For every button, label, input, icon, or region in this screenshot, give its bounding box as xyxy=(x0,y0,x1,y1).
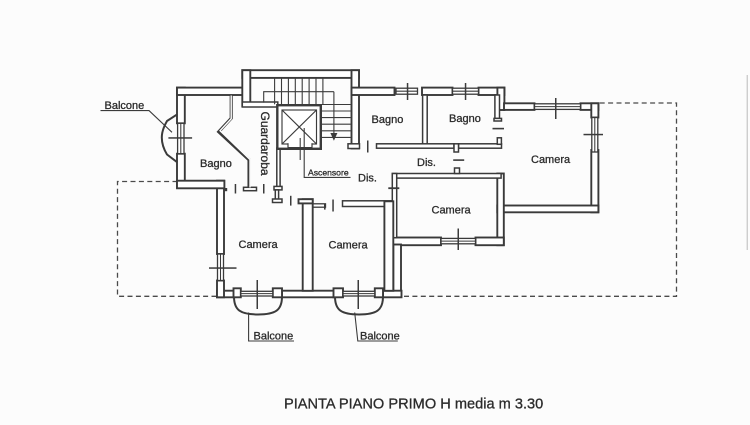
svg-text:Bagno: Bagno xyxy=(449,113,481,125)
svg-text:Camera: Camera xyxy=(531,154,571,166)
svg-text:Camera: Camera xyxy=(239,239,279,251)
svg-text:Camera: Camera xyxy=(329,240,369,252)
svg-text:Balcone: Balcone xyxy=(360,330,400,342)
svg-text:Ascensore: Ascensore xyxy=(308,168,349,178)
svg-text:Bagno: Bagno xyxy=(372,114,404,126)
svg-text:Guardaroba: Guardaroba xyxy=(258,112,272,176)
svg-text:Balcone: Balcone xyxy=(105,100,145,112)
svg-text:Dis.: Dis. xyxy=(358,173,377,185)
svg-text:Bagno: Bagno xyxy=(200,158,232,170)
svg-text:Dis.: Dis. xyxy=(417,157,436,169)
svg-text:Camera: Camera xyxy=(432,205,472,217)
svg-text:Balcone: Balcone xyxy=(254,330,294,342)
svg-text:PIANTA PIANO PRIMO H media m 3: PIANTA PIANO PRIMO H media m 3.30 xyxy=(284,397,543,413)
